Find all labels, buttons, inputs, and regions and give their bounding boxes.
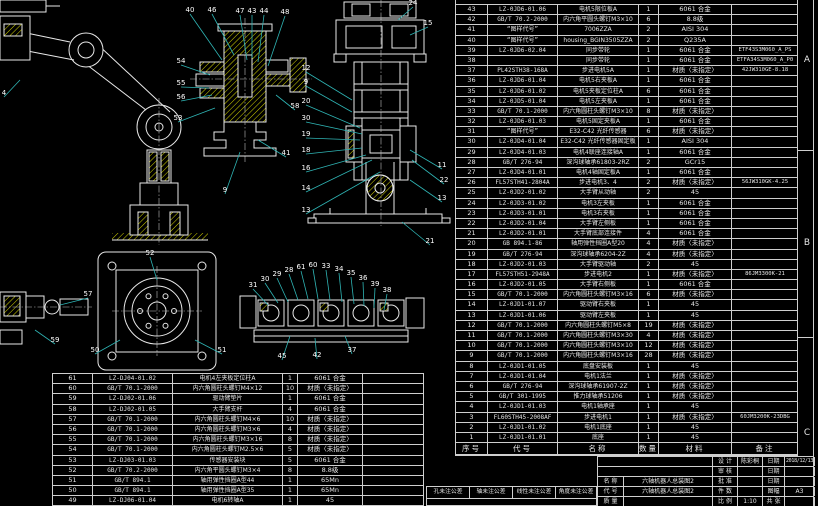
- leader-line: [313, 269, 318, 299]
- table-cell: 6061 合金: [659, 46, 732, 55]
- table-cell: [732, 219, 798, 228]
- table-cell: 6: [639, 127, 659, 136]
- table-cell: 60JM3200K-23DBG: [732, 413, 798, 422]
- mass-label: 质 量: [598, 497, 624, 506]
- table-cell: 24: [456, 199, 488, 208]
- tolerance-value-row-clipped: [427, 499, 596, 506]
- table-cell: 电机1法兰: [558, 372, 639, 381]
- table-cell: LZ-0JD4-01.03: [488, 148, 558, 157]
- table-cell: [732, 382, 798, 391]
- table-cell: 28: [639, 351, 659, 360]
- table-cell: 轴用弹性挡圈A型20: [558, 239, 639, 248]
- table-row: 1LZ-0JD1-01.01底座145: [456, 433, 797, 443]
- table-row: 3FL60STH45-2008AF步进电机11材质〈未指定〉60JM3200K-…: [456, 413, 797, 423]
- approver-name: [738, 477, 763, 486]
- scale-label: 比 例: [713, 497, 738, 506]
- balloon-number: 58: [291, 102, 300, 110]
- table-row: 24LZ-0JD3-01.02电机3左夹板16061 合金: [456, 199, 797, 209]
- table-cell: [732, 433, 798, 442]
- table-cell: ETF43S3M060_A_PS: [732, 46, 798, 55]
- table-cell: 推力球轴承51206: [558, 392, 639, 401]
- table-row: 15GB/T 70.1-2000内六角圆柱头螺钉M3×166材质〈未指定〉: [456, 290, 797, 300]
- table-cell: 13: [456, 311, 488, 320]
- table-cell: 4: [639, 250, 659, 259]
- sheet-format-label: 图幅: [763, 487, 785, 496]
- table-cell: LZ-0JD2-01.02: [488, 188, 558, 197]
- balloon-number: 46: [208, 6, 217, 14]
- table-cell: [732, 321, 798, 330]
- table-cell: 42JW310GE-8.18: [732, 66, 798, 75]
- table-cell: 1: [639, 97, 659, 106]
- table-cell: LZ-0JD6-02.04: [488, 46, 558, 55]
- table-cell: 1: [639, 66, 659, 75]
- leader-line: [374, 288, 375, 308]
- scale-value: 1:10: [738, 497, 763, 506]
- table-row: 14LZ-0JD1-01.07驱动臂右夹板145: [456, 300, 797, 310]
- table-cell: 8: [456, 362, 488, 371]
- table-cell: LZ-DJ03-01.03: [93, 456, 173, 465]
- table-cell: 27: [456, 168, 488, 177]
- table-cell: 材质〈未指定〉: [298, 445, 363, 454]
- table-cell: 21: [456, 229, 488, 238]
- table-cell: [732, 97, 798, 106]
- balloon-number: 59: [51, 336, 60, 344]
- table-cell: 42: [456, 15, 488, 24]
- table-cell: 10: [283, 415, 298, 424]
- view-gripper-detail: [240, 296, 424, 342]
- table-cell: 电机3左夹板: [558, 199, 639, 208]
- table-cell: [732, 402, 798, 411]
- view-column-elevation: [308, 0, 450, 226]
- table-cell: GB 894.1-86: [488, 239, 558, 248]
- table-cell: 材质〈未指定〉: [659, 351, 732, 360]
- table-cell: [363, 496, 423, 505]
- balloon-number: 13: [302, 206, 311, 214]
- table-cell: 步进电机5A: [558, 66, 639, 75]
- table-row: 53LZ-DJ03-01.03传感器安装块56061 合金: [53, 456, 423, 466]
- table-cell: LZ-0JD1-01.05: [488, 362, 558, 371]
- table-row: 19GB/T 276-94深沟球轴承6204-2Z4材质〈未指定〉: [456, 250, 797, 260]
- table-cell: [732, 280, 798, 289]
- table-cell: 驱动臂垫片: [173, 394, 283, 403]
- table-cell: [732, 311, 798, 320]
- table-cell: 电机1轴承座: [558, 402, 639, 411]
- table-cell: 大手臂从动轴: [558, 188, 639, 197]
- table-cell: [732, 158, 798, 167]
- table-cell: [732, 392, 798, 401]
- balloon-number: 61: [297, 263, 306, 271]
- table-cell: 2: [639, 178, 659, 187]
- table-cell: 电机5夹板定位柱A: [558, 87, 639, 96]
- table-cell: [363, 415, 423, 424]
- table-cell: LZ-0JD6-01.03: [488, 117, 558, 126]
- balloon-number: 28: [285, 266, 294, 274]
- table-cell: 5: [283, 456, 298, 465]
- table-cell: 材质〈未指定〉: [659, 331, 732, 340]
- table-cell: LZ-DJ04-01.02: [93, 374, 173, 383]
- design-date-label: 日期: [763, 457, 785, 466]
- table-cell: 材质〈未指定〉: [298, 425, 363, 434]
- tolerance-header-row: 孔未注公差 轴未注公差 线性未注公差 角度未注公差: [427, 487, 596, 499]
- table-cell: LZ-0JD1-01.02: [488, 423, 558, 432]
- balloon-number: 34: [335, 265, 344, 273]
- table-cell: 内六角圆柱头螺钉M3×10: [558, 341, 639, 350]
- balloon-number: 45: [278, 352, 287, 360]
- table-row: 12GB/T 70.1-2000内六角圆柱头螺钉M5×819材质〈未指定〉: [456, 321, 797, 331]
- balloon-number: 30: [261, 275, 270, 283]
- tolerance-label-linear: 线性未注公差: [513, 487, 556, 498]
- table-cell: 2: [456, 423, 488, 432]
- table-cell: 6: [639, 87, 659, 96]
- table-cell: 3: [456, 413, 488, 422]
- balloon-number: 48: [281, 8, 290, 16]
- balloon-number: 60: [309, 261, 318, 269]
- table-cell: [732, 290, 798, 299]
- table-cell: GB/T 301-1995: [488, 392, 558, 401]
- table-cell: 4: [456, 402, 488, 411]
- table-cell: 23: [456, 209, 488, 218]
- table-row: 41“图样代号”7006ZZA2AISI 304: [456, 25, 797, 35]
- table-cell: [732, 300, 798, 309]
- table-cell: 材质〈未指定〉: [298, 435, 363, 444]
- table-cell: 15: [456, 290, 488, 299]
- table-cell: 底盘安装板: [558, 362, 639, 371]
- pages-value: [785, 497, 815, 506]
- table-cell: 17: [456, 270, 488, 279]
- table-cell: 7: [456, 372, 488, 381]
- table-cell: [732, 260, 798, 269]
- table-cell: 1: [639, 137, 659, 146]
- table-cell: [363, 384, 423, 393]
- table-cell: [732, 117, 798, 126]
- table-row: 55GB/T 70.1-2000内六角圆柱头螺钉M3×168材质〈未指定〉: [53, 435, 423, 445]
- table-cell: 1: [283, 374, 298, 383]
- balloon-number: 40: [186, 6, 195, 14]
- designer-label: 设 计: [713, 457, 738, 466]
- table-cell: 材质〈未指定〉: [659, 321, 732, 330]
- table-row: 23LZ-0JD3-01.01电机3右夹板16061 合金: [456, 209, 797, 219]
- table-cell: 材质〈未指定〉: [659, 392, 732, 401]
- tolerance-block: 孔未注公差 轴未注公差 线性未注公差 角度未注公差: [426, 486, 597, 506]
- table-cell: 1: [639, 382, 659, 391]
- table-cell: 1: [639, 392, 659, 401]
- table-cell: AISI 304: [659, 25, 732, 34]
- leader-line: [306, 105, 360, 128]
- table-cell: [732, 25, 798, 34]
- table-cell: 内六角圆柱头螺钉M3×16: [558, 351, 639, 360]
- table-row: 17FL57STH51-2948A步进电机21材质〈未指定〉86JM3300K-…: [456, 270, 797, 280]
- table-cell: ETFA34S3M060_A_P0: [732, 56, 798, 65]
- balloon-number: 37: [348, 346, 357, 354]
- column-header: 数量: [639, 443, 659, 454]
- table-row: 59LZ-DJ02-01.06驱动臂垫片16061 合金: [53, 394, 423, 404]
- balloon-number: 12: [302, 64, 311, 72]
- table-cell: [732, 331, 798, 340]
- table-cell: 1: [639, 423, 659, 432]
- table-row: 32LZ-0JD6-01.03电机5固定夹板A16061 合金: [456, 117, 797, 127]
- table-cell: 41: [456, 25, 488, 34]
- leader-line: [339, 273, 342, 302]
- table-cell: 26: [456, 178, 488, 187]
- balloon-number: 33: [322, 262, 331, 270]
- leader-line: [306, 155, 366, 172]
- table-cell: FL57STH41-2804A: [488, 178, 558, 187]
- table-cell: 28: [456, 158, 488, 167]
- table-cell: 6061 合金: [659, 199, 732, 208]
- table-cell: 内六角圆柱头螺钉M3×16: [173, 435, 283, 444]
- table-cell: 4: [639, 239, 659, 248]
- table-cell: 35: [456, 87, 488, 96]
- table-cell: [732, 362, 798, 371]
- zone-letter-a: A: [800, 55, 814, 65]
- table-cell: [732, 423, 798, 432]
- table-cell: 5: [283, 445, 298, 454]
- table-cell: LZ-0JD3-01.02: [488, 199, 558, 208]
- table-cell: 6061 合金: [298, 374, 363, 383]
- table-cell: E32-C42 光纤传感器: [558, 127, 639, 136]
- table-cell: [363, 486, 423, 495]
- column-header: 材料: [659, 443, 732, 454]
- table-cell: 材质〈未指定〉: [659, 66, 732, 75]
- table-cell: 1: [639, 148, 659, 157]
- table-cell: 1: [456, 433, 488, 442]
- approver-label: 批 准: [713, 477, 738, 486]
- leader-line: [301, 271, 308, 299]
- table-cell: 1: [639, 117, 659, 126]
- table-cell: GB/T 70.1-2000: [488, 331, 558, 340]
- table-cell: 58: [53, 405, 93, 414]
- pages-label: 共 张: [763, 497, 785, 506]
- table-cell: 1: [639, 209, 659, 218]
- table-cell: 6061 合金: [659, 76, 732, 85]
- table-cell: 45: [659, 311, 732, 320]
- table-cell: 传感器安装块: [173, 456, 283, 465]
- table-cell: GB/T 70.1-2000: [488, 290, 558, 299]
- table-row: 54GB/T 70.1-2000内六角圆柱头螺钉M2.5×65材质〈未指定〉: [53, 445, 423, 455]
- table-cell: 56: [53, 425, 93, 434]
- table-row: 26FL57STH41-2804A步进电机3、42材质〈未指定〉56JW310G…: [456, 178, 797, 188]
- table-cell: 19: [456, 250, 488, 259]
- table-cell: GCr15: [659, 158, 732, 167]
- table-cell: GB/T 70.1-2000: [93, 445, 173, 454]
- table-cell: LZ-0JD2-01.05: [488, 280, 558, 289]
- table-cell: 内六角圆柱头螺钉M4×12: [173, 384, 283, 393]
- table-cell: LZ-0JD4-01.01: [488, 168, 558, 177]
- table-cell: [732, 15, 798, 24]
- leader-line: [306, 72, 352, 100]
- table-cell: 大手臂左侧板: [558, 219, 639, 228]
- table-cell: 6: [639, 15, 659, 24]
- table-cell: GB/T 276-94: [488, 158, 558, 167]
- table-cell: 1: [639, 76, 659, 85]
- view-wrist-partial: [0, 292, 92, 344]
- table-cell: LZ-0JD3-01.01: [488, 209, 558, 218]
- table-cell: 材质〈未指定〉: [298, 384, 363, 393]
- table-cell: 6061 合金: [659, 56, 732, 65]
- table-cell: PL42STH38-168A: [488, 66, 558, 75]
- table-cell: 4: [283, 405, 298, 414]
- table-cell: 电机5左夹板A: [558, 97, 639, 106]
- table-cell: GB/T 894.1: [93, 486, 173, 495]
- table-cell: 深沟球轴承61907-2Z: [558, 382, 639, 391]
- table-cell: 大手臂右侧板: [558, 280, 639, 289]
- table-cell: 6061 合金: [298, 394, 363, 403]
- table-row: 16LZ-0JD2-01.05大手臂右侧板16061 合金: [456, 280, 797, 290]
- table-cell: 55: [53, 435, 93, 444]
- table-cell: [732, 5, 798, 14]
- table-cell: 7006ZZA: [558, 25, 639, 34]
- table-cell: 34: [456, 97, 488, 106]
- table-cell: 6061 合金: [298, 405, 363, 414]
- table-cell: LZ-DJ02-01.05: [93, 405, 173, 414]
- balloon-number: 51: [218, 346, 227, 354]
- table-row: 39LZ-0JD6-02.04同步带轮16061 合金ETF43S3M060_A…: [456, 46, 797, 56]
- table-cell: [363, 394, 423, 403]
- table-cell: [732, 107, 798, 116]
- table-cell: 1: [639, 280, 659, 289]
- table-row: 56GB/T 70.1-2000内六角圆柱头螺钉M3×64材质〈未指定〉: [53, 425, 423, 435]
- table-row: 42GB/T 70.2-2000内六角平圆头螺钉M3×1068.8级: [456, 15, 797, 25]
- checker-name: [738, 467, 763, 476]
- table-cell: 6061 合金: [659, 168, 732, 177]
- table-cell: 材质〈未指定〉: [659, 382, 732, 391]
- table-row: 25LZ-0JD2-01.02大手臂从动轴245: [456, 188, 797, 198]
- table-cell: 8: [283, 466, 298, 475]
- table-cell: 49: [53, 496, 93, 505]
- table-cell: 45: [659, 433, 732, 442]
- table-cell: 步进电机3、4: [558, 178, 639, 187]
- table-cell: 材质〈未指定〉: [659, 239, 732, 248]
- checker-label: 审 核: [713, 467, 738, 476]
- table-cell: [488, 56, 558, 65]
- table-cell: 电机3右夹板: [558, 209, 639, 218]
- balloon-number: 14: [302, 184, 311, 192]
- table-row: 9GB/T 70.1-2000内六角圆柱头螺钉M3×1628材质〈未指定〉: [456, 351, 797, 361]
- title-row-designer: 设 计 陈彩桐 日期 2018/12/13: [598, 457, 814, 467]
- table-cell: 驱动臂左夹板: [558, 311, 639, 320]
- table-cell: 37: [456, 66, 488, 75]
- balloon-number: 13: [438, 194, 447, 202]
- balloon-number: 9: [304, 78, 308, 86]
- table-row: 5GB/T 301-1995推力球轴承512061材质〈未指定〉: [456, 392, 797, 402]
- table-cell: 16: [456, 280, 488, 289]
- table-cell: [732, 229, 798, 238]
- table-row: 52GB/T 70.2-2000内六角平圆头螺钉M3×488.8级: [53, 466, 423, 476]
- tolerance-label-angle: 角度未注公差: [556, 487, 596, 498]
- title-blank-cell: [598, 467, 713, 476]
- leader-line: [150, 257, 157, 280]
- table-cell: 45: [659, 300, 732, 309]
- table-cell: 53: [53, 456, 93, 465]
- table-cell: LZ-0JD2-01.04: [488, 219, 558, 228]
- table-cell: LZ-0JD5-01.04: [488, 97, 558, 106]
- table-row: 11GB/T 70.1-2000内六角圆柱头螺钉M3×304材质〈未指定〉: [456, 331, 797, 341]
- table-cell: 6061 合金: [659, 5, 732, 14]
- balloon-number: 9: [223, 186, 227, 194]
- table-cell: GB/T 70.2-2000: [488, 15, 558, 24]
- balloon-number: 52: [146, 249, 155, 257]
- table-cell: 1: [639, 362, 659, 371]
- table-cell: [732, 188, 798, 197]
- table-cell: GB/T 70.1-2000: [93, 415, 173, 424]
- table-cell: 6061 合金: [659, 117, 732, 126]
- table-cell: LZ-0JD2-01.03: [488, 260, 558, 269]
- table-cell: 电机1底座: [558, 423, 639, 432]
- table-cell: 12: [639, 341, 659, 350]
- table-row: 18LZ-0JD2-01.03大手臂驱动轴245: [456, 260, 797, 270]
- table-cell: Q235A: [659, 36, 732, 45]
- table-cell: 1: [639, 56, 659, 65]
- table-cell: LZ-DJ02-01.06: [93, 394, 173, 403]
- table-cell: E32-C42 光纤传感器固定板: [558, 137, 639, 146]
- table-cell: FL60STH45-2008AF: [488, 413, 558, 422]
- table-cell: 1: [639, 300, 659, 309]
- table-row: 27LZ-0JD4-01.01电机4轴固定板A16061 合金: [456, 168, 797, 178]
- table-cell: “图样代号”: [488, 36, 558, 45]
- table-cell: 同步带轮: [558, 56, 639, 65]
- table-row: 51GB/T 894.1轴用弹性挡圈A型44165Mn: [53, 476, 423, 486]
- table-cell: 材质〈未指定〉: [298, 415, 363, 424]
- column-header: 名称: [558, 443, 639, 454]
- table-row: 36LZ-0JD6-01.04电机5右夹板A16061 合金: [456, 76, 797, 86]
- table-cell: 43: [456, 5, 488, 14]
- table-row: 2LZ-0JD1-01.02电机1底座145: [456, 423, 797, 433]
- table-cell: housing_BGIN3505ZZA: [558, 36, 639, 45]
- table-row: 28GB/T 276-94深沟球轴承61803-2RZ2GCr15: [456, 158, 797, 168]
- table-cell: [732, 351, 798, 360]
- table-cell: 32: [456, 117, 488, 126]
- balloon-number: 22: [440, 176, 449, 184]
- title-block: 设 计 陈彩桐 日期 2018/12/13 审 核 日期 名 称 六轴机器人总装…: [597, 456, 814, 506]
- title-blank-cell: [598, 457, 713, 466]
- design-date-value: 2018/12/13: [785, 457, 815, 466]
- table-cell: 5: [456, 392, 488, 401]
- leader-line: [326, 270, 330, 300]
- table-row: 61LZ-DJ04-01.02电机4左夹板定位柱A16061 合金: [53, 374, 423, 384]
- table-cell: 1: [639, 413, 659, 422]
- table-row: 10GB/T 70.1-2000内六角圆柱头螺钉M3×1012材质〈未指定〉: [456, 341, 797, 351]
- drawing-area: 4046474344485455565358419129203019181614…: [0, 0, 455, 376]
- table-cell: GB/T 70.1-2000: [488, 321, 558, 330]
- table-cell: GB/T 276-94: [488, 250, 558, 259]
- bom-table-continuation: 61LZ-DJ04-01.02电机4左夹板定位柱A16061 合金60GB/T …: [52, 373, 424, 506]
- table-cell: 54: [53, 445, 93, 454]
- table-cell: 轴用弹性挡圈A型44: [173, 476, 283, 485]
- table-cell: AISI 304: [659, 137, 732, 146]
- check-date-value: [785, 467, 815, 476]
- balloon-number: 50: [91, 346, 100, 354]
- drawing-name-value: 六轴机器人总装图2: [624, 477, 713, 486]
- table-cell: 20: [456, 239, 488, 248]
- balloon-number: 21: [426, 237, 435, 245]
- table-cell: 6061 合金: [659, 209, 732, 218]
- table-cell: 31: [456, 127, 488, 136]
- table-cell: 电机4轴固定板A: [558, 168, 639, 177]
- table-cell: 1: [639, 372, 659, 381]
- table-cell: 65Mn: [298, 486, 363, 495]
- table-row: 49LZ-DJ06-01.04电机6转轴A145: [53, 496, 423, 506]
- table-cell: 1: [283, 394, 298, 403]
- column-header: 代号: [488, 443, 558, 454]
- table-cell: 65Mn: [298, 476, 363, 485]
- table-cell: 材质〈未指定〉: [659, 250, 732, 259]
- table-row: 4LZ-0JD1-01.03电机1轴承座145: [456, 402, 797, 412]
- zone-margin-line: [797, 0, 798, 456]
- table-cell: [363, 466, 423, 475]
- table-cell: 材质〈未指定〉: [659, 127, 732, 136]
- table-cell: LZ-0JD6-01.04: [488, 76, 558, 85]
- table-cell: [732, 87, 798, 96]
